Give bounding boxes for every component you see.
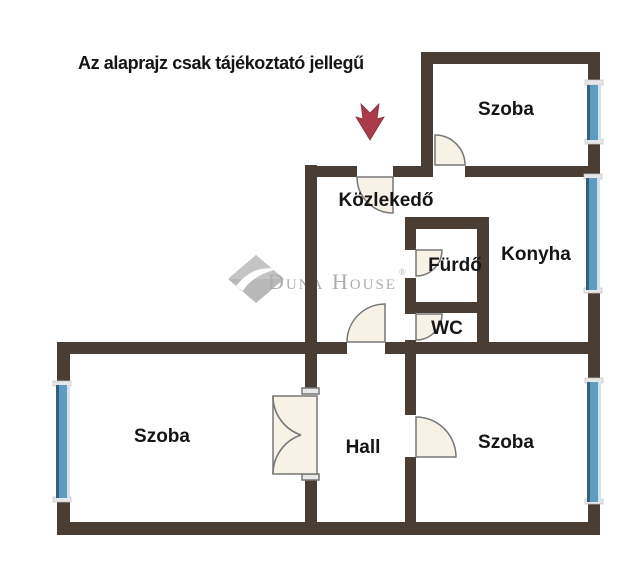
wall-segment: [405, 278, 416, 314]
wall-segment: [57, 342, 347, 354]
wall-segment: [405, 340, 416, 415]
wall-segment: [57, 500, 70, 535]
room-label-szoba-top-right: Szoba: [478, 99, 534, 120]
room-label-szoba-left: Szoba: [134, 426, 190, 447]
registered-trademark: ®: [399, 267, 406, 277]
entrance-arrow-icon: [356, 104, 384, 140]
wall-segment: [405, 217, 489, 229]
wall-segment: [57, 522, 600, 535]
double-door: [273, 388, 319, 480]
wall-segment: [405, 457, 416, 535]
wall-segment: [405, 302, 489, 313]
window-marker: [584, 174, 602, 293]
wall-segment: [421, 52, 433, 177]
wall-segment: [305, 478, 317, 535]
wall-segment: [405, 217, 416, 250]
wall-segment: [588, 290, 600, 382]
room-label-furdo: Fürdő: [428, 255, 482, 276]
window-marker: [585, 80, 603, 144]
window-marker: [53, 381, 71, 502]
wall-segment: [305, 165, 317, 392]
room-label-konyha: Konyha: [501, 244, 571, 265]
floor-plan-canvas: Duna House ®: [0, 0, 640, 568]
room-label-szoba-right: Szoba: [478, 432, 534, 453]
room-label-kozlekedo: Közlekedő: [338, 190, 433, 211]
disclaimer-text: Az alaprajz csak tájékoztató jellegű: [78, 53, 364, 73]
door-swing: [435, 135, 465, 165]
duna-house-watermark-text: Duna House: [268, 269, 397, 294]
wall-segment: [57, 342, 70, 385]
room-label-hall: Hall: [346, 437, 381, 458]
door-swing: [416, 417, 456, 457]
window-marker: [585, 378, 603, 504]
wall-segment: [477, 217, 489, 354]
wall-segment: [588, 502, 600, 535]
wall-segment: [465, 166, 600, 177]
wall-segment: [385, 342, 600, 354]
room-label-wc: WC: [431, 318, 463, 339]
wall-segment: [588, 140, 600, 178]
door-swing: [347, 304, 385, 342]
wall-segment: [421, 52, 600, 64]
